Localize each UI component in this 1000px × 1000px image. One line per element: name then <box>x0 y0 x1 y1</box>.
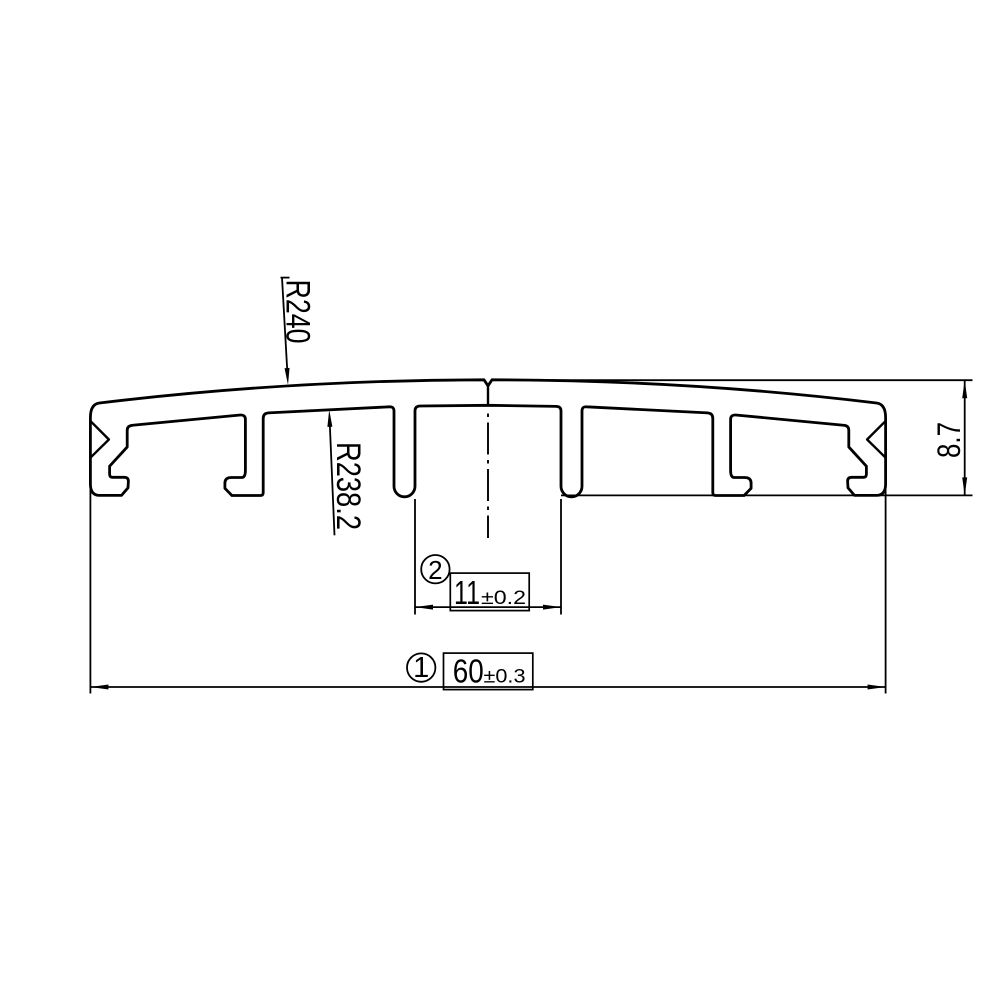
svg-text:R240: R240 <box>279 280 317 344</box>
svg-text:8.7: 8.7 <box>931 422 967 458</box>
svg-text:±0.3: ±0.3 <box>484 666 526 688</box>
svg-text:11: 11 <box>454 574 480 611</box>
svg-text:±0.2: ±0.2 <box>481 587 526 609</box>
svg-text:60: 60 <box>453 653 484 690</box>
svg-text:2: 2 <box>428 555 442 585</box>
svg-text:1: 1 <box>413 652 429 684</box>
svg-text:R238.2: R238.2 <box>329 442 367 530</box>
